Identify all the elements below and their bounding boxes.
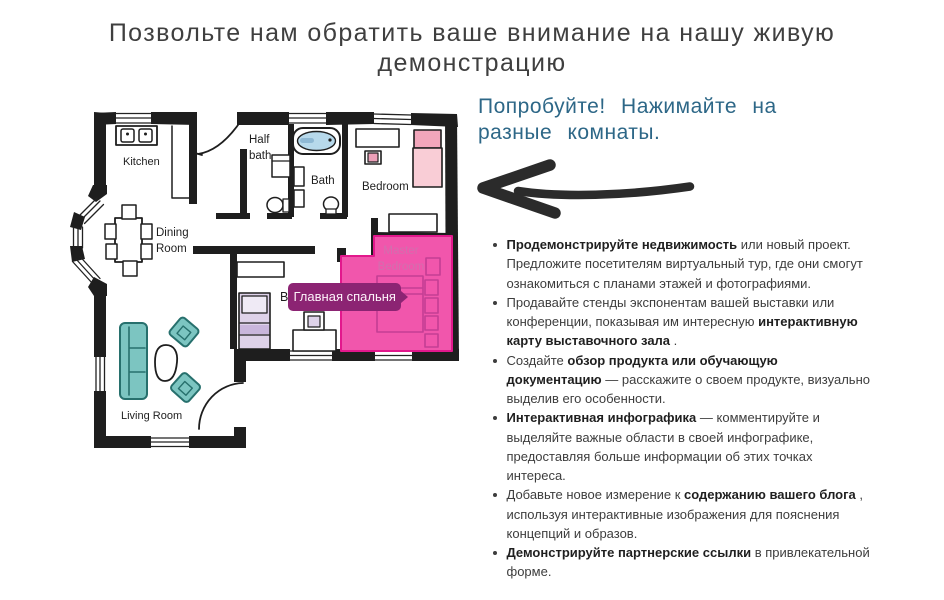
svg-text:Bedroom: Bedroom xyxy=(378,261,425,273)
svg-text:Master: Master xyxy=(383,245,418,257)
svg-text:Room: Room xyxy=(156,243,187,255)
svg-text:bath: bath xyxy=(249,150,271,162)
svg-text:Living Room: Living Room xyxy=(121,410,182,422)
svg-text:Kitchen: Kitchen xyxy=(123,156,160,168)
svg-text:Bedroom: Bedroom xyxy=(362,181,409,193)
svg-text:Dining: Dining xyxy=(156,227,189,239)
svg-text:Bath: Bath xyxy=(311,175,335,187)
svg-text:Half: Half xyxy=(249,134,270,146)
